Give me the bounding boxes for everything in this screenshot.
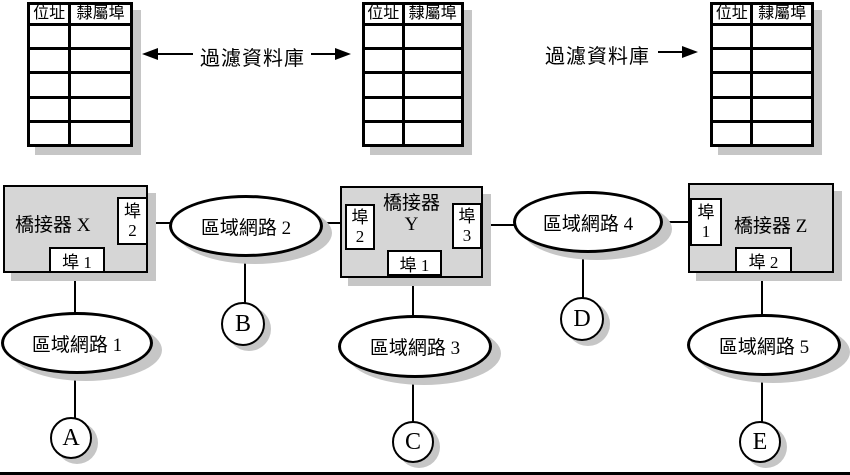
- table-row: [712, 49, 813, 73]
- address-column-header: 位址: [712, 4, 752, 25]
- station-a-label: A: [62, 425, 79, 452]
- table-row: [29, 25, 132, 49]
- lan-4-ellipse: 區域網路 4: [513, 191, 663, 253]
- port-num: 3: [463, 226, 472, 245]
- table-row: [364, 121, 463, 145]
- lan-4-label: 區域網路 4: [543, 209, 633, 236]
- bridge-y: 橋接器 Y 埠 2 埠 3 埠 1: [340, 186, 483, 278]
- filter-table-2: 位址 隸屬埠: [362, 2, 464, 147]
- lan-2-label: 區域網路 2: [201, 213, 291, 240]
- filter-db-label-left: 過濾資料庫: [200, 42, 305, 71]
- table-row: [29, 97, 132, 121]
- table-row: [364, 49, 463, 73]
- address-column-header: 位址: [364, 4, 404, 25]
- port-num: 2: [356, 227, 365, 246]
- bridge-x-port-1: 埠 1: [49, 247, 105, 273]
- bridge-z-port-2: 埠 2: [735, 247, 792, 273]
- station-b-circle: B: [221, 302, 265, 346]
- station-e-circle: E: [739, 421, 781, 463]
- station-b-label: B: [235, 311, 251, 338]
- filter-db-label-right: 過濾資料庫: [545, 40, 650, 69]
- station-d-circle: D: [560, 297, 604, 341]
- station-a-circle: A: [50, 417, 92, 459]
- bridge-x-label: 橋接器 X: [15, 210, 90, 237]
- table-row: [29, 49, 132, 73]
- port-char: 埠: [459, 207, 476, 226]
- table-row: [29, 121, 132, 145]
- table-row: [364, 25, 463, 49]
- port-column-header: 隸屬埠: [403, 4, 462, 25]
- bridge-z: 橋接器 Z 埠 1 埠 2: [688, 183, 834, 273]
- port-column-header: 隸屬埠: [752, 4, 813, 25]
- bridge-y-port-2: 埠 2: [345, 204, 375, 250]
- station-c-circle: C: [392, 421, 434, 463]
- table-row: [712, 97, 813, 121]
- lan-1-ellipse: 區域網路 1: [1, 312, 153, 374]
- filter-table-1: 位址 隸屬埠: [27, 2, 133, 147]
- left-arrow-icon: [142, 48, 193, 60]
- table-row: [29, 73, 132, 97]
- bridge-y-port-1: 埠 1: [387, 250, 442, 276]
- port-num: 1: [702, 222, 711, 241]
- port-char: 埠: [698, 203, 715, 222]
- lan-3-ellipse: 區域網路 3: [338, 315, 492, 378]
- port-char: 埠: [124, 202, 141, 221]
- table-row: [712, 25, 813, 49]
- lan-2-ellipse: 區域網路 2: [169, 195, 323, 257]
- bridge-z-port-1: 埠 1: [690, 198, 722, 246]
- station-c-label: C: [405, 429, 421, 456]
- address-column-header: 位址: [29, 4, 70, 25]
- station-e-label: E: [753, 429, 768, 456]
- lan-5-ellipse: 區域網路 5: [687, 314, 841, 376]
- table-row: [364, 73, 463, 97]
- table-row: [712, 73, 813, 97]
- table-row: [364, 97, 463, 121]
- right-arrow-icon-2: [658, 46, 698, 58]
- bridged-lan-diagram: 位址 隸屬埠 位址 隸屬埠 位址 隸屬埠 過濾資料庫 過濾資料庫: [0, 0, 850, 475]
- port-column-header: 隸屬埠: [70, 4, 132, 25]
- bridge-x-port-2: 埠 2: [117, 197, 148, 245]
- table-row: [712, 121, 813, 145]
- lan-5-label: 區域網路 5: [719, 332, 809, 359]
- lan-3-label: 區域網路 3: [370, 333, 460, 360]
- bridge-z-label: 橋接器 Z: [734, 211, 807, 238]
- right-arrow-icon: [311, 48, 351, 60]
- lan-1-label: 區域網路 1: [32, 330, 122, 357]
- port-char: 埠: [352, 208, 369, 227]
- station-d-label: D: [573, 306, 590, 333]
- bridge-y-port-3: 埠 3: [452, 203, 482, 249]
- bridge-x: 橋接器 X 埠 2 埠 1: [3, 185, 148, 273]
- port-num: 2: [128, 221, 137, 240]
- filter-table-3: 位址 隸屬埠: [710, 2, 814, 147]
